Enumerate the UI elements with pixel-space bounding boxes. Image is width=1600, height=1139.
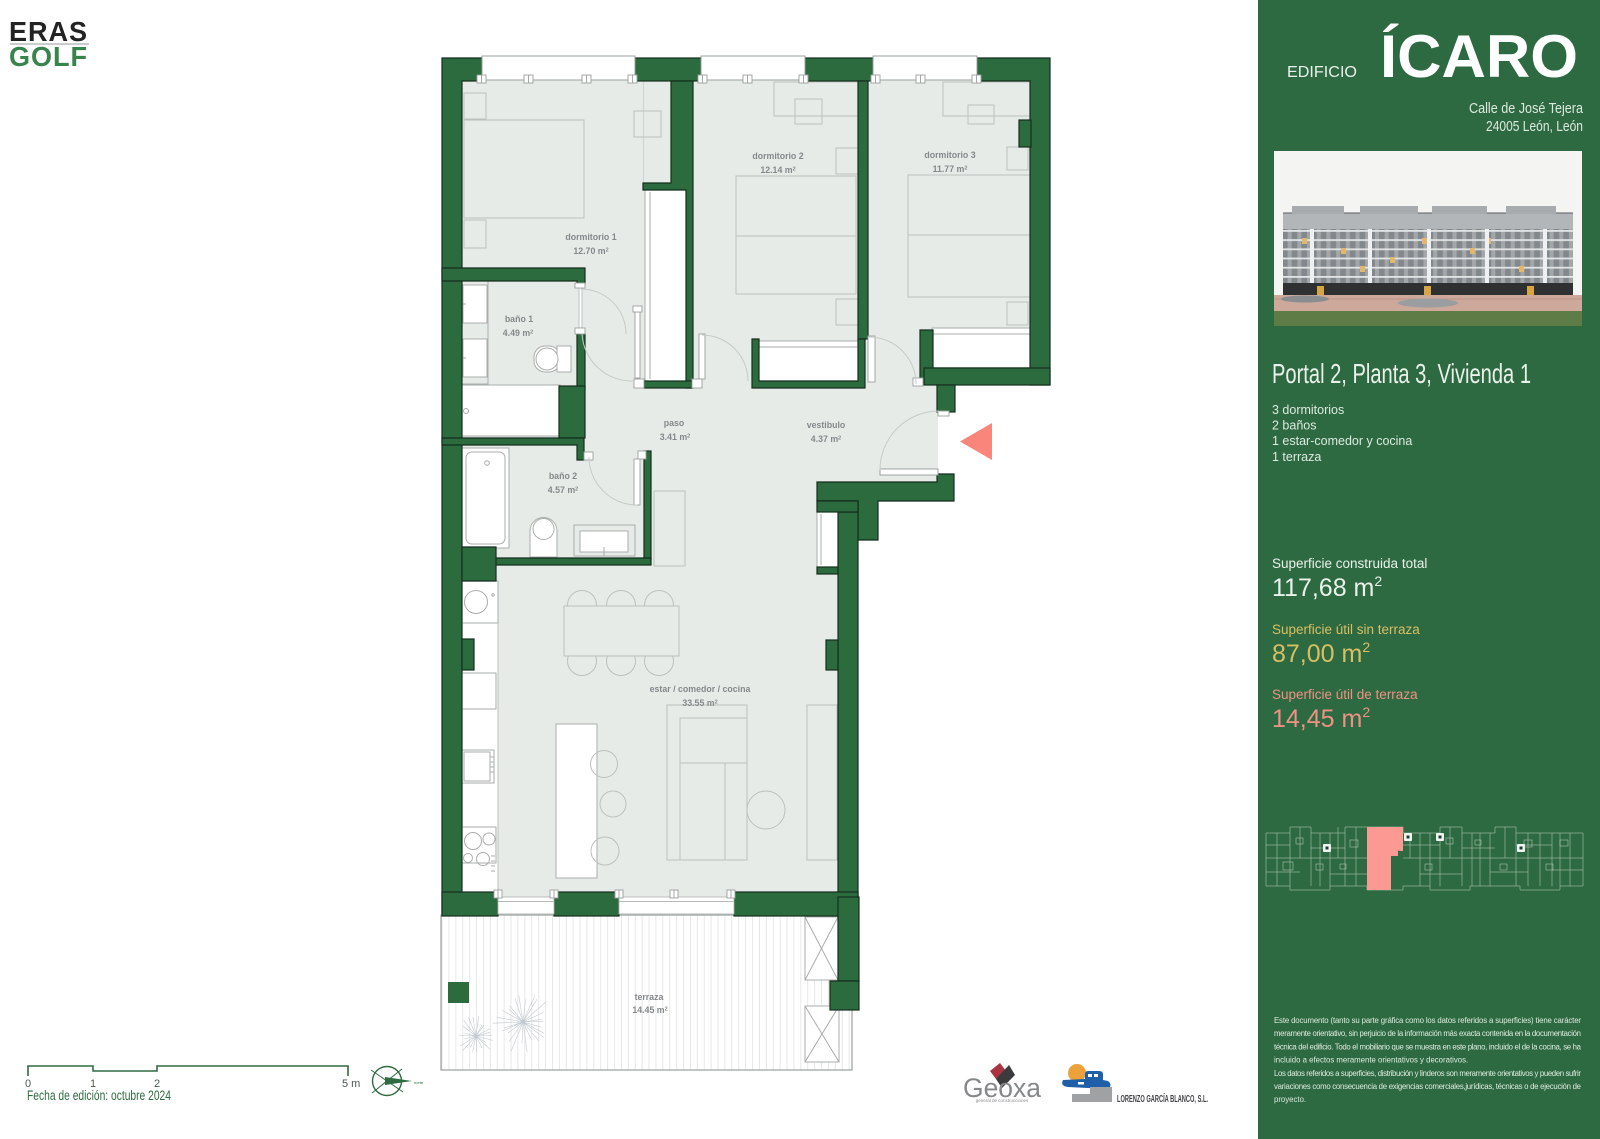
svg-text:meramente orientativo, sin per: meramente orientativo, sin perjuicio de …: [1274, 1029, 1581, 1038]
svg-text:33.55 m2: 33.55 m2: [682, 698, 717, 708]
svg-text:Calle de José Tejera: Calle de José Tejera: [1469, 101, 1584, 117]
svg-text:5 m: 5 m: [342, 1078, 360, 1090]
svg-text:12.70 m2: 12.70 m2: [573, 246, 608, 256]
svg-text:Superficie construida total: Superficie construida total: [1272, 556, 1427, 571]
svg-text:Este documento (tanto su parte: Este documento (tanto su parte gráfica c…: [1274, 1016, 1581, 1025]
svg-text:estar / comedor / cocina: estar / comedor / cocina: [650, 684, 751, 694]
svg-text:dormitorio 2: dormitorio 2: [752, 151, 803, 161]
svg-text:4.57 m2: 4.57 m2: [548, 485, 578, 495]
svg-text:1 estar-comedor y cocina: 1 estar-comedor y cocina: [1272, 434, 1412, 448]
svg-text:EDIFICIO: EDIFICIO: [1287, 64, 1357, 81]
svg-text:Superficie útil sin terraza: Superficie útil sin terraza: [1272, 622, 1420, 637]
svg-text:técnica del edificio. Todo el: técnica del edificio. Todo el mobiliario…: [1274, 1042, 1582, 1051]
svg-text:4.49 m2: 4.49 m2: [503, 328, 533, 338]
svg-text:Portal 2, Planta 3, Vivienda 1: Portal 2, Planta 3, Vivienda 1: [1272, 358, 1531, 389]
svg-text:12.14 m2: 12.14 m2: [760, 165, 795, 175]
svg-text:2 baños: 2 baños: [1272, 419, 1316, 433]
svg-text:general de construcciones: general de construcciones: [976, 1098, 1029, 1103]
svg-text:Superficie útil de terraza: Superficie útil de terraza: [1272, 687, 1418, 702]
svg-text:4.37 m2: 4.37 m2: [811, 434, 841, 444]
svg-text:3 dormitorios: 3 dormitorios: [1272, 403, 1344, 417]
svg-text:Los datos referidos a superfic: Los datos referidos a superficies, distr…: [1274, 1069, 1581, 1078]
svg-text:norte: norte: [414, 1080, 424, 1085]
svg-text:11.77 m2: 11.77 m2: [933, 164, 968, 174]
svg-text:87,00 m2: 87,00 m2: [1272, 639, 1370, 668]
svg-text:117,68 m2: 117,68 m2: [1272, 573, 1382, 602]
svg-text:terraza: terraza: [635, 992, 664, 1002]
svg-text:dormitorio 3: dormitorio 3: [924, 150, 975, 160]
svg-text:3.41 m2: 3.41 m2: [660, 432, 690, 442]
svg-text:proyecto.: proyecto.: [1274, 1095, 1306, 1104]
svg-text:incluido a efectos meramente o: incluido a efectos meramente orientativo…: [1274, 1056, 1468, 1065]
svg-text:1 terraza: 1 terraza: [1272, 450, 1321, 464]
svg-text:GOLF: GOLF: [9, 41, 88, 72]
svg-text:14.45 m2: 14.45 m2: [632, 1005, 667, 1015]
svg-text:LORENZO GARCÍA BLANCO, S.L.: LORENZO GARCÍA BLANCO, S.L.: [1117, 1092, 1208, 1105]
svg-text:14,45 m2: 14,45 m2: [1272, 704, 1370, 733]
svg-text:ÍCARO: ÍCARO: [1380, 23, 1578, 90]
svg-text:paso: paso: [664, 418, 685, 428]
svg-text:Fecha de edición: octubre 2024: Fecha de edición: octubre 2024: [27, 1088, 171, 1103]
svg-text:baño 2: baño 2: [549, 471, 577, 481]
svg-text:vestibulo: vestibulo: [807, 420, 846, 430]
svg-text:dormitorio 1: dormitorio 1: [565, 232, 616, 242]
svg-text:24005 León, León: 24005 León, León: [1486, 119, 1583, 135]
svg-text:variaciones como consecuencia: variaciones como consecuencia de exigenc…: [1274, 1082, 1581, 1091]
svg-text:baño 1: baño 1: [505, 314, 533, 324]
